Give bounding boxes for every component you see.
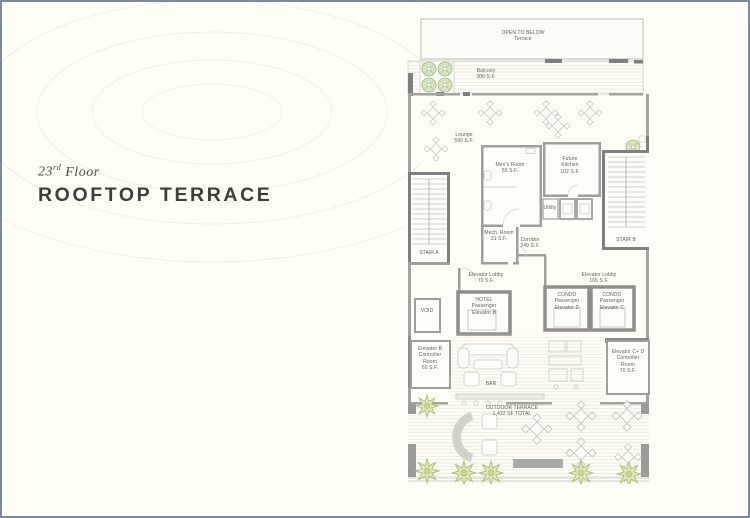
tree-icon: [479, 461, 503, 484]
label-corridor: Corridor249 S.F.: [520, 237, 539, 250]
dining-table-icon: [421, 101, 445, 125]
dining-table-icon: [534, 101, 558, 125]
label-void: VOID: [421, 308, 434, 314]
label-future-kitchen: FutureKitchen102 S.F.: [560, 156, 579, 175]
label-lounge: Lounge590 S.F.: [454, 132, 473, 145]
contour-lines-decor: [2, 2, 422, 518]
bar-counter: [456, 394, 544, 399]
floor-number: 23: [38, 165, 53, 180]
sofa-icon: [462, 344, 514, 355]
label-elevator-cd-controller: Elevator C+ DControllerRoom70 S.F.: [612, 349, 645, 374]
dining-table-icon: [546, 114, 570, 138]
page-title: ROOFTOP TERRACE: [38, 184, 272, 207]
floor-word: Floor: [65, 165, 99, 180]
label-bar: BAR: [486, 381, 497, 387]
label-utility: Utility: [544, 205, 557, 211]
brochure-page: 23rdFloor ROOFTOP TERRACE: [0, 0, 750, 518]
tree-icon: [415, 459, 439, 483]
label-elevator-b-controller: Elevator BControllerRoom60 S.F.: [418, 346, 442, 371]
label-open-to-below: OPEN TO BELOWTerrace: [501, 30, 544, 43]
balcony-planter: [420, 61, 454, 94]
plant-icon: [422, 78, 436, 92]
label-outdoor-terrace: OUTDOOR TERRACE1,432 SF TOTAL: [486, 405, 538, 418]
label-condo-elevator-d: CONDOPassengerElevator D: [555, 292, 580, 311]
dining-table-icon: [478, 101, 502, 125]
floor-plan: OPEN TO BELOWTerrace Balcony306 S.F. Lou…: [406, 16, 651, 484]
label-elevator-lobby-hotel: Elevator Lobby70 S.F.: [469, 272, 504, 285]
label-stair-a: STAIR A: [419, 250, 439, 256]
label-hotel-elevator-b: HOTELPassengerElevator B: [472, 297, 497, 316]
armchair-icon: [464, 372, 479, 386]
label-condo-elevator-c: CONDOPassengerElevator C: [600, 292, 625, 311]
tree-icon: [416, 395, 438, 417]
dining-table-icon: [424, 137, 448, 161]
label-stair-b: STAIR B: [616, 237, 636, 243]
void-room: [415, 299, 440, 332]
tree-icon: [569, 461, 593, 484]
plant-icon: [422, 62, 436, 76]
label-mech-room: Mech. Room31 S.F.: [484, 230, 513, 243]
plant-icon: [438, 62, 452, 76]
floor-title-block: 23rdFloor ROOFTOP TERRACE: [38, 162, 272, 207]
label-balcony: Balcony306 S.F.: [476, 68, 495, 81]
sofa-icon: [458, 348, 469, 368]
plant-icon: [438, 78, 452, 92]
mens-room: [481, 145, 542, 227]
floor-number-line: 23rdFloor: [38, 162, 272, 181]
stair-b: [602, 150, 649, 250]
sofa-icon: [507, 348, 518, 368]
coffee-table-icon: [474, 360, 502, 369]
terrace-edge: [408, 478, 649, 481]
label-mens-room: Men's Room55 S.F.: [496, 162, 525, 175]
armchair-icon: [501, 372, 516, 386]
tree-icon: [452, 461, 476, 484]
lounge-chair-icon: [482, 440, 497, 455]
dining-table-icon: [578, 101, 602, 125]
floor-ordinal: rd: [53, 162, 61, 172]
label-elevator-lobby-condo: Elevator Lobby165 S.F.: [582, 272, 617, 285]
